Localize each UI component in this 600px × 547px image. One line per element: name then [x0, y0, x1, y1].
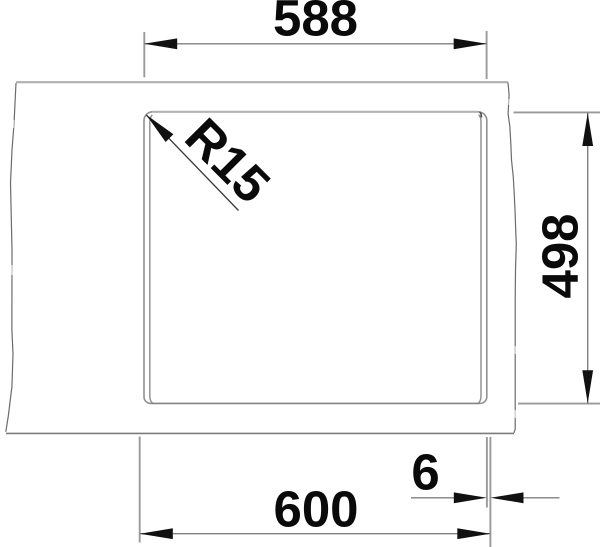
- svg-text:6: 6: [411, 444, 439, 501]
- svg-text:600: 600: [273, 481, 358, 538]
- svg-text:588: 588: [273, 0, 358, 47]
- svg-text:498: 498: [532, 213, 589, 298]
